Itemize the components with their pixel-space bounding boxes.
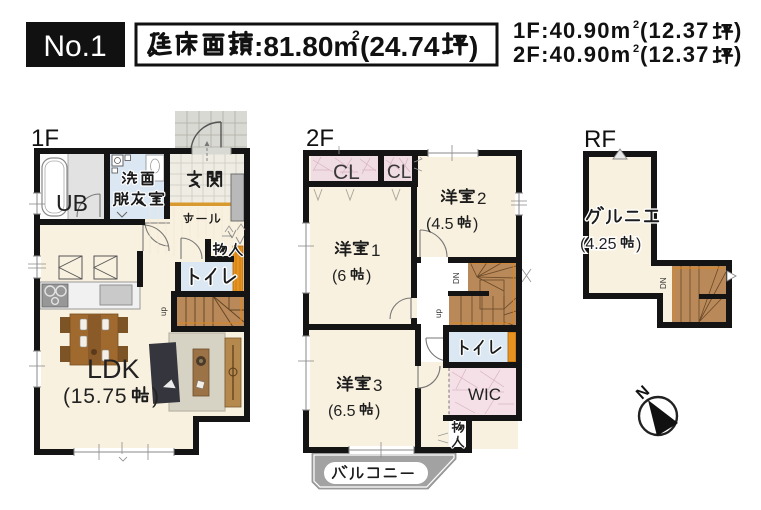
svg-text:RF: RF [584,126,616,153]
svg-text:): ) [473,216,478,233]
svg-text::81.80m: :81.80m [254,31,358,62]
svg-text:(6.5: (6.5 [328,403,356,420]
svg-text:2F:40.90m: 2F:40.90m [513,42,631,67]
svg-text:up: up [434,309,443,318]
svg-text:CL: CL [333,161,360,184]
svg-text:): ) [375,403,380,420]
svg-text:2: 2 [633,19,639,31]
svg-text:2: 2 [352,27,360,43]
svg-text:(6: (6 [332,268,346,285]
svg-text:No.1: No.1 [43,30,106,63]
svg-text:(4.5: (4.5 [426,216,454,233]
svg-text:(15.75: (15.75 [63,385,127,408]
svg-text:): ) [469,31,478,62]
svg-text:1F:40.90m: 1F:40.90m [513,18,631,43]
svg-text:(12.37: (12.37 [640,42,710,67]
svg-text:2: 2 [477,189,486,208]
svg-text:WIC: WIC [468,385,501,404]
svg-text:3: 3 [373,376,382,395]
svg-text:2F: 2F [306,125,334,152]
svg-text:UB: UB [56,190,88,216]
svg-text:DN: DN [452,272,461,284]
svg-text:): ) [152,385,159,408]
svg-text:): ) [366,268,371,285]
svg-text:1: 1 [371,241,380,260]
svg-text:(4.25: (4.25 [580,236,617,253]
svg-text:): ) [734,42,741,67]
svg-text:(12.37: (12.37 [640,18,710,43]
svg-text:1F: 1F [31,125,59,152]
svg-text:(24.74: (24.74 [360,31,440,62]
svg-text:CL: CL [387,162,411,183]
svg-text:DN: DN [659,277,668,289]
svg-text:): ) [636,236,641,253]
svg-text:up: up [159,307,168,316]
svg-text:): ) [734,18,741,43]
svg-text:2: 2 [633,43,639,55]
svg-text:LDK: LDK [87,354,140,384]
